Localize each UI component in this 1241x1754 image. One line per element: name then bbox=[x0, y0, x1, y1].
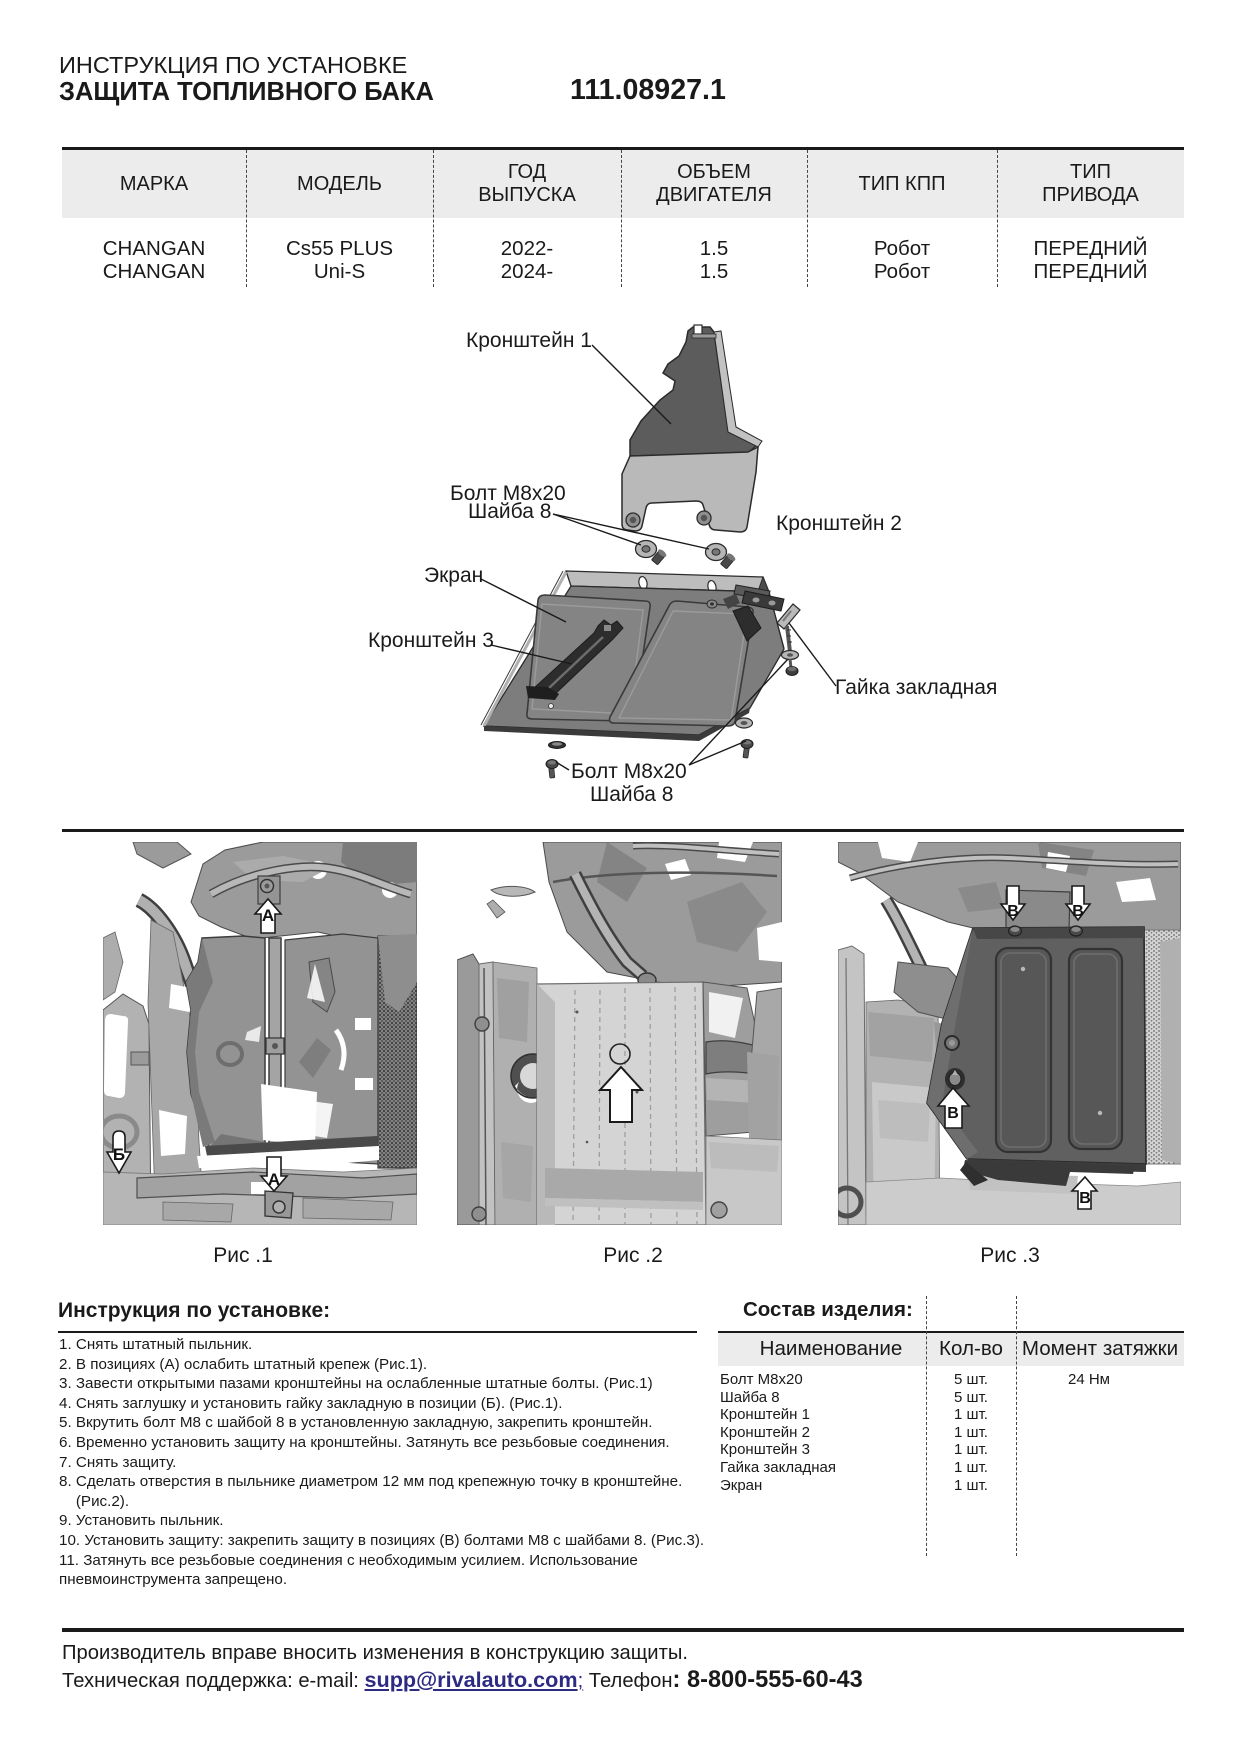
svg-text:А: А bbox=[262, 906, 274, 925]
svg-text:Гайка закладная: Гайка закладная bbox=[835, 676, 997, 699]
svg-text:В: В bbox=[1079, 1190, 1091, 1207]
svg-text:Б: Б bbox=[113, 1145, 125, 1164]
svg-text:В: В bbox=[1072, 903, 1084, 920]
svg-text:Кронштейн 3: Кронштейн 3 bbox=[368, 629, 494, 652]
svg-text:Болт М8х20: Болт М8х20 bbox=[571, 760, 687, 783]
svg-text:Шайба 8: Шайба 8 bbox=[468, 500, 551, 523]
svg-text:Экран: Экран bbox=[424, 564, 483, 587]
svg-text:В: В bbox=[947, 1105, 959, 1122]
svg-text:Кронштейн 2: Кронштейн 2 bbox=[776, 512, 902, 535]
svg-text:В: В bbox=[1007, 903, 1019, 920]
svg-text:Кронштейн 1: Кронштейн 1 bbox=[466, 329, 592, 352]
svg-text:Шайба 8: Шайба 8 bbox=[590, 783, 673, 806]
svg-text:А: А bbox=[268, 1170, 280, 1189]
